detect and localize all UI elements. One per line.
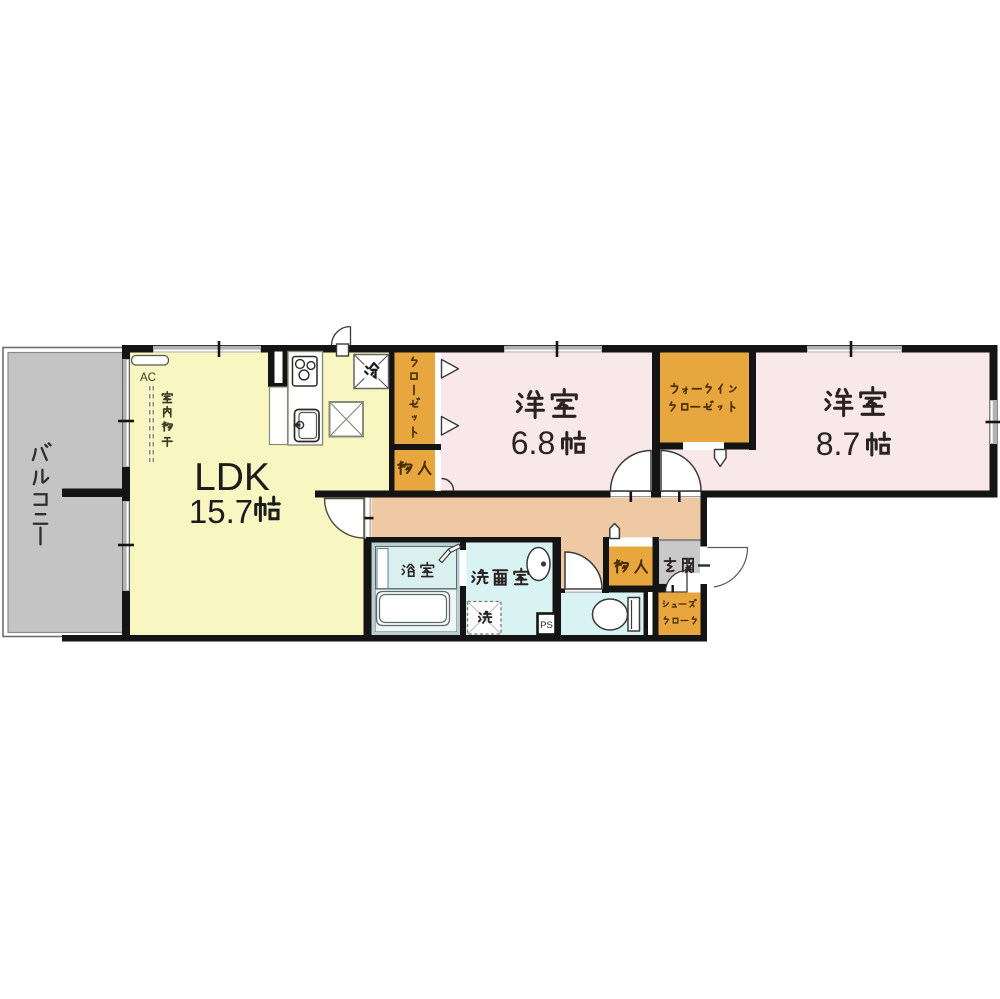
svg-text:6.8: 6.8	[511, 425, 555, 461]
svg-text:AC: AC	[140, 372, 156, 384]
svg-text:15.7: 15.7	[189, 493, 253, 530]
svg-text:PS: PS	[540, 620, 553, 631]
svg-text:8.7: 8.7	[816, 426, 860, 462]
